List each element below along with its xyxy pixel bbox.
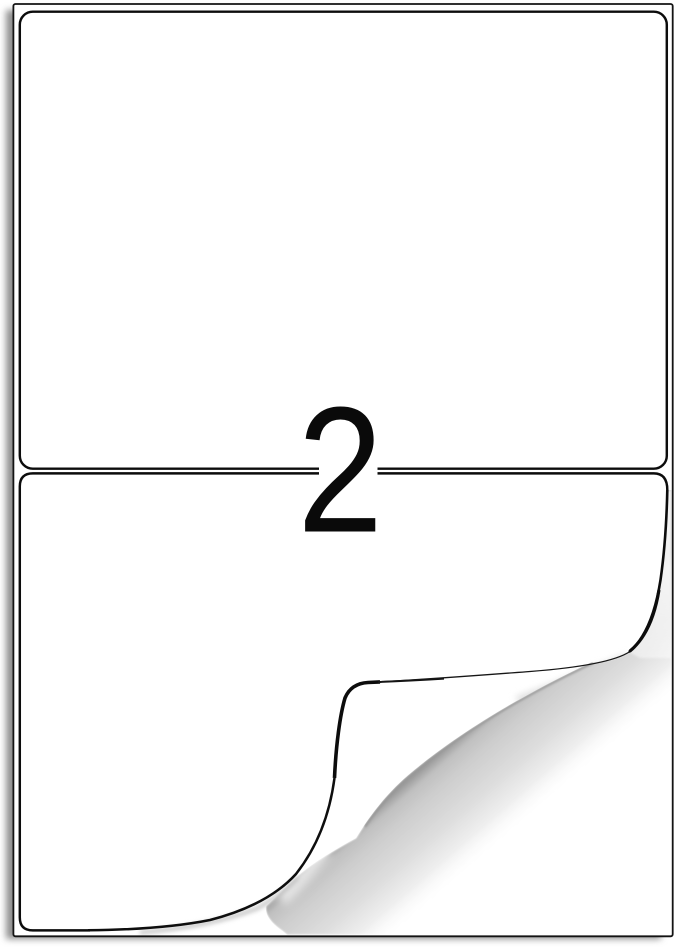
svg-text:2: 2 [297,371,383,570]
